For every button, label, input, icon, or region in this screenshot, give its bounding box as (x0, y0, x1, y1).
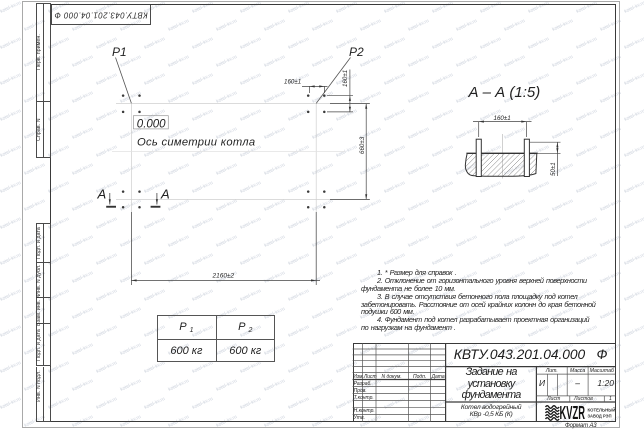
svg-text:KVZR: KVZR (560, 403, 586, 422)
svg-text:КОТЕЛЬНЫЙ: КОТЕЛЬНЫЙ (588, 405, 617, 412)
svg-text:ЗАВОД РЭП: ЗАВОД РЭП (588, 413, 613, 418)
